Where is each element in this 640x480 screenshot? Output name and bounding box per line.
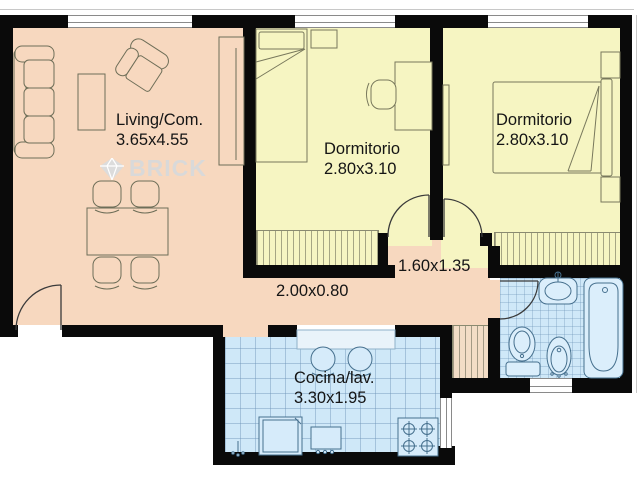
desk-chair xyxy=(367,80,397,109)
kitchen-dims: 3.30x1.95 xyxy=(294,388,374,408)
nightstand xyxy=(601,52,620,78)
floor-drain xyxy=(232,441,245,456)
bidet xyxy=(547,337,571,377)
toilet xyxy=(506,327,540,376)
sofa xyxy=(14,46,54,158)
watermark-text: BRICK xyxy=(129,155,207,182)
bedroom1-label: Dormitorio 2.80x3.10 xyxy=(324,139,400,179)
floor-plan: Living/Com. 3.65x4.55 Dormitorio 2.80x3.… xyxy=(0,0,640,480)
kitchen-name: Cocina/lav. xyxy=(294,368,374,388)
breakfast-counter xyxy=(297,330,395,349)
nightstand xyxy=(311,30,337,48)
hall-dims-label: 1.60x1.35 xyxy=(398,256,470,276)
living-room-label: Living/Com. 3.65x4.55 xyxy=(116,110,203,150)
dining-table xyxy=(87,208,168,255)
bedroom2-name: Dormitorio xyxy=(496,110,572,130)
sideboard xyxy=(78,74,105,130)
entrance-door xyxy=(16,285,61,330)
dining-chair xyxy=(131,257,159,289)
laundry-sink xyxy=(311,427,341,454)
living-room-name: Living/Com. xyxy=(116,110,203,130)
nightstand xyxy=(601,177,620,202)
living-room-dims: 3.65x4.55 xyxy=(116,130,203,150)
tv-unit xyxy=(219,37,244,165)
washing-machine xyxy=(259,417,302,455)
wall-shelf xyxy=(443,85,449,165)
bedroom1-name: Dormitorio xyxy=(324,139,400,159)
kitchen-label: Cocina/lav. 3.30x1.95 xyxy=(294,368,374,408)
bathtub xyxy=(584,278,623,378)
corridor-dims-label: 2.00x0.80 xyxy=(276,281,348,301)
sink-vanity xyxy=(539,272,577,304)
watermark: BRICK xyxy=(100,155,207,182)
furniture-layer xyxy=(0,0,640,480)
bedroom2-dims: 2.80x3.10 xyxy=(496,130,572,150)
bedroom1-dims: 2.80x3.10 xyxy=(324,159,400,179)
bathroom-door xyxy=(500,281,538,319)
bedroom2-label: Dormitorio 2.80x3.10 xyxy=(496,110,572,150)
armchair xyxy=(113,36,171,94)
single-bed xyxy=(256,29,307,162)
dining-chair xyxy=(93,257,121,289)
gem-icon xyxy=(100,158,124,180)
bedroom2-door xyxy=(444,199,482,237)
desk xyxy=(395,62,432,130)
stove xyxy=(398,418,438,456)
bedroom1-door xyxy=(388,195,429,237)
